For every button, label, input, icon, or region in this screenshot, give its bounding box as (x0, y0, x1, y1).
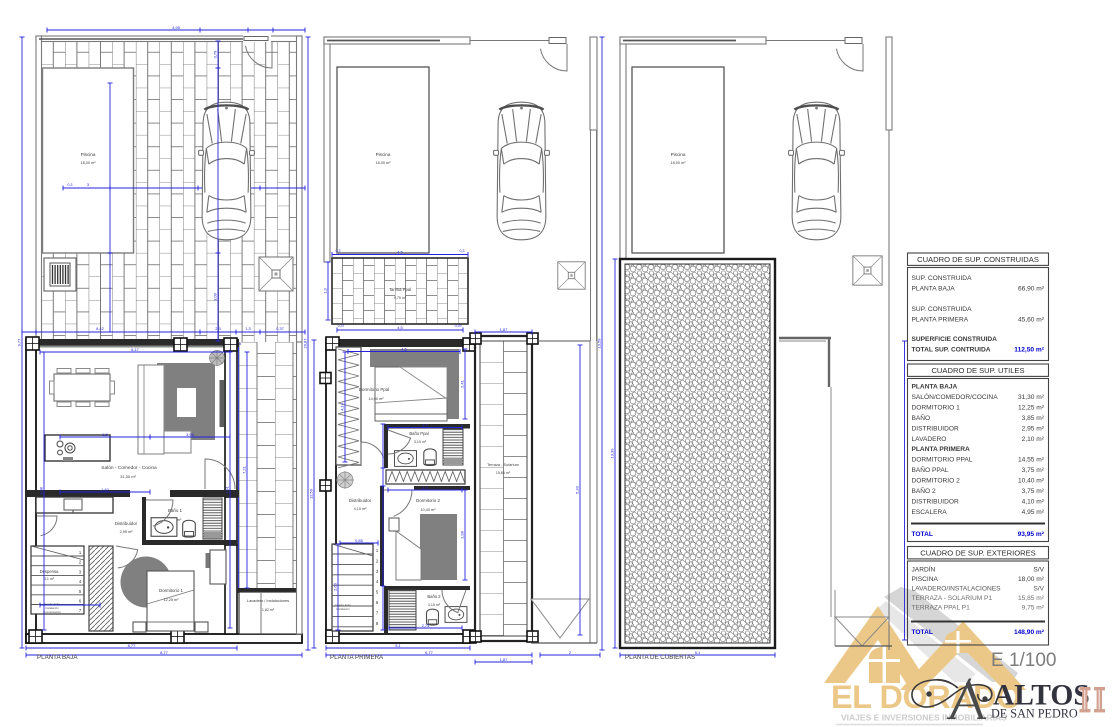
svg-text:S/V: S/V (1033, 586, 1044, 593)
svg-text:7,91: 7,91 (225, 485, 230, 494)
svg-text:Dormitorio 1: Dormitorio 1 (159, 588, 183, 593)
svg-text:BAÑO 2: BAÑO 2 (912, 486, 937, 495)
svg-text:4: 4 (376, 579, 379, 584)
svg-text:5: 5 (376, 590, 379, 595)
svg-text:PLANTA PRIMERA: PLANTA PRIMERA (912, 446, 970, 453)
svg-text:2,10 m²: 2,10 m² (1022, 436, 1045, 443)
svg-text:4,5: 4,5 (401, 346, 407, 351)
svg-text:0,29: 0,29 (455, 324, 462, 328)
svg-text:PLANTA BAJA: PLANTA BAJA (912, 384, 958, 391)
svg-text:0,79: 0,79 (213, 50, 218, 59)
svg-text:DISTRIBUIDOR: DISTRIBUIDOR (912, 425, 959, 432)
svg-text:3,75 m²: 3,75 m² (1022, 467, 1045, 474)
svg-text:9,75 m²: 9,75 m² (394, 296, 407, 300)
svg-text:66,90 m²: 66,90 m² (1018, 286, 1045, 293)
svg-text:TERRAZA PPAL P1: TERRAZA PPAL P1 (912, 605, 971, 612)
svg-text:Dormitorio Ppal: Dormitorio Ppal (359, 387, 389, 392)
svg-text:PISCINA: PISCINA (912, 576, 939, 583)
svg-text:TOTAL: TOTAL (912, 629, 933, 636)
svg-text:2,74: 2,74 (422, 623, 431, 628)
svg-text:2,95 m²: 2,95 m² (1022, 425, 1045, 432)
svg-text:PLANTA PRIMERA: PLANTA PRIMERA (912, 317, 969, 324)
svg-text:4,5: 4,5 (397, 325, 403, 330)
svg-text:3,75 m²: 3,75 m² (1022, 488, 1045, 495)
svg-text:12,25 m²: 12,25 m² (1018, 404, 1045, 411)
svg-text:5,33: 5,33 (575, 485, 580, 494)
svg-text:4,10 m²: 4,10 m² (354, 507, 368, 511)
svg-text:Terraza - Solarium: Terraza - Solarium (487, 462, 519, 467)
svg-text:0,85: 0,85 (355, 538, 364, 543)
svg-text:BAÑO: BAÑO (912, 413, 931, 422)
svg-text:2: 2 (569, 650, 572, 655)
svg-text:3,15 m²: 3,15 m² (428, 603, 441, 607)
svg-text:3,1 m²: 3,1 m² (44, 577, 55, 581)
svg-text:3,09: 3,09 (213, 292, 218, 301)
svg-text:4,95: 4,95 (172, 25, 181, 30)
svg-text:Piscina: Piscina (671, 152, 686, 157)
svg-text:Baño 2: Baño 2 (427, 594, 441, 599)
svg-text:9,75 m²: 9,75 m² (1022, 605, 1045, 612)
svg-text:DE SAN PEDRO: DE SAN PEDRO (991, 707, 1078, 721)
svg-text:14,55 m²: 14,55 m² (1018, 457, 1045, 464)
svg-text:1,87: 1,87 (500, 327, 509, 332)
svg-text:1,82 m²: 1,82 m² (262, 608, 275, 612)
svg-text:BAÑO PPAL: BAÑO PPAL (912, 465, 949, 474)
svg-text:0,3: 0,3 (460, 249, 465, 253)
svg-text:Salón - Comedor - Cocina: Salón - Comedor - Cocina (101, 465, 157, 471)
svg-text:1,3: 1,3 (245, 326, 251, 331)
svg-text:E 1/100: E 1/100 (991, 650, 1057, 671)
svg-text:CUADRO DE SUP. CONSTRUIDAS: CUADRO DE SUP. CONSTRUIDAS (917, 255, 1039, 264)
svg-text:Piscina: Piscina (376, 152, 391, 157)
svg-text:DORMITORIO 1: DORMITORIO 1 (912, 404, 961, 411)
svg-text:Comunicación: Comunicación (43, 610, 61, 614)
svg-text:SALÓN/COMEDOR/COCINA: SALÓN/COMEDOR/COCINA (912, 392, 999, 401)
svg-text:6,17: 6,17 (131, 347, 140, 352)
svg-text:0,3: 0,3 (336, 249, 341, 253)
svg-text:PLANTA BAJA: PLANTA BAJA (37, 654, 78, 661)
svg-text:TERRAZA - SOLARIUM P1: TERRAZA - SOLARIUM P1 (912, 595, 993, 602)
svg-text:0,3: 0,3 (68, 183, 73, 187)
svg-text:5,1: 5,1 (695, 650, 701, 655)
svg-text:DORMITORIO PPAL: DORMITORIO PPAL (912, 457, 973, 464)
svg-text:9,08: 9,08 (39, 486, 44, 495)
svg-text:2,60: 2,60 (333, 582, 338, 591)
svg-text:DISTRIBUIDOR: DISTRIBUIDOR (912, 498, 959, 505)
svg-text:1,3: 1,3 (323, 287, 328, 293)
svg-text:5,1: 5,1 (395, 643, 401, 648)
svg-text:TOTAL SUP. CONTRUIDA: TOTAL SUP. CONTRUIDA (912, 347, 991, 354)
svg-text:12,59: 12,59 (309, 488, 314, 499)
svg-text:2,95 m²: 2,95 m² (120, 530, 134, 534)
svg-text:2,7: 2,7 (422, 422, 428, 427)
svg-text:31,30 m²: 31,30 m² (1018, 394, 1045, 401)
svg-text:Despensa: Despensa (40, 569, 60, 574)
svg-text:Distribuidor: Distribuidor (349, 498, 372, 503)
svg-text:0,37: 0,37 (276, 326, 285, 331)
svg-text:Baño Ppal: Baño Ppal (409, 431, 428, 436)
svg-text:15,85 m²: 15,85 m² (496, 471, 511, 475)
svg-text:12,25 m²: 12,25 m² (164, 598, 180, 602)
svg-text:Piscina: Piscina (81, 152, 96, 157)
svg-text:Tarima Ppal: Tarima Ppal (389, 287, 411, 292)
svg-text:3,96: 3,96 (186, 432, 195, 437)
svg-text:3,15 m²: 3,15 m² (414, 440, 427, 444)
svg-text:4,14: 4,14 (340, 402, 345, 411)
svg-text:18,00 m²: 18,00 m² (376, 161, 392, 165)
svg-text:PLANTA PRIMERA: PLANTA PRIMERA (330, 654, 384, 661)
svg-text:8,77: 8,77 (160, 650, 169, 655)
svg-text:20,87: 20,87 (303, 338, 308, 349)
svg-text:148,90 m²: 148,90 m² (1014, 629, 1045, 636)
svg-text:Distribuidor: Distribuidor (115, 521, 138, 526)
svg-text:13,39: 13,39 (610, 448, 615, 459)
svg-text:4,10 m²: 4,10 m² (1022, 498, 1045, 505)
svg-text:PLANTA BAJA: PLANTA BAJA (912, 286, 956, 293)
svg-text:1: 1 (376, 548, 379, 553)
svg-text:8,77: 8,77 (128, 643, 137, 648)
svg-text:2: 2 (376, 558, 379, 563)
svg-text:7,21: 7,21 (242, 465, 247, 474)
svg-text:4,5: 4,5 (397, 249, 403, 254)
svg-text:1,98: 1,98 (460, 530, 465, 539)
svg-text:18,00 m²: 18,00 m² (671, 161, 687, 165)
svg-text:CUADRO DE SUP. UTILES: CUADRO DE SUP. UTILES (931, 366, 1024, 375)
svg-text:JARDÍN: JARDÍN (912, 565, 936, 574)
svg-text:93,95 m²: 93,95 m² (1018, 531, 1045, 538)
svg-text:Dormitorio 2: Dormitorio 2 (416, 498, 440, 503)
svg-text:SUP. CONSTRUIDA: SUP. CONSTRUIDA (912, 306, 973, 313)
svg-text:TOTAL: TOTAL (912, 531, 933, 538)
svg-text:10,40 m²: 10,40 m² (421, 508, 437, 512)
svg-text:10,40 m²: 10,40 m² (1018, 478, 1045, 485)
svg-text:DORMITORIO 2: DORMITORIO 2 (912, 478, 961, 485)
svg-text:9,77: 9,77 (17, 338, 22, 347)
svg-text:SUPERFICIE CONSTRUIDA: SUPERFICIE CONSTRUIDA (912, 336, 998, 343)
svg-text:14,00 m²: 14,00 m² (369, 397, 385, 401)
svg-text:CUADRO DE SUP. EXTERIORES: CUADRO DE SUP. EXTERIORES (920, 549, 1035, 558)
svg-text:6,77: 6,77 (425, 650, 434, 655)
svg-text:112,50 m²: 112,50 m² (1014, 347, 1044, 354)
svg-text:18,00 m²: 18,00 m² (81, 161, 97, 165)
svg-text:3: 3 (376, 569, 379, 574)
svg-text:Lavadero / Instalaciones: Lavadero / Instalaciones (247, 598, 289, 603)
svg-text:LAVADERO: LAVADERO (912, 436, 947, 443)
svg-text:6: 6 (376, 600, 379, 605)
svg-text:0,37: 0,37 (338, 324, 345, 328)
svg-text:31,30 m²: 31,30 m² (120, 474, 136, 479)
svg-text:13,59: 13,59 (597, 338, 602, 349)
svg-text:8,42: 8,42 (96, 326, 105, 331)
svg-text:PLANTA DE CUBIERTAS: PLANTA DE CUBIERTAS (625, 654, 695, 661)
svg-text:2,41: 2,41 (460, 379, 465, 388)
svg-text:1,87: 1,87 (500, 657, 509, 662)
svg-text:7: 7 (376, 610, 379, 615)
svg-text:SUP. CONSTRUIDA: SUP. CONSTRUIDA (912, 275, 973, 282)
svg-text:3,85 m²: 3,85 m² (1022, 415, 1045, 422)
svg-text:S/V: S/V (1033, 567, 1044, 574)
svg-text:LAVADERO/INSTALACIONES: LAVADERO/INSTALACIONES (912, 586, 1002, 593)
svg-text:18,00 m²: 18,00 m² (1018, 576, 1045, 583)
svg-text:15,85 m²: 15,85 m² (1018, 595, 1045, 602)
svg-text:ESCALERA: ESCALERA (912, 509, 948, 516)
svg-text:45,60 m²: 45,60 m² (1018, 317, 1045, 324)
svg-text:4,95 m²: 4,95 m² (1022, 509, 1045, 516)
svg-text:1,40: 1,40 (101, 487, 110, 492)
svg-text:8: 8 (376, 621, 379, 626)
svg-text:2,7: 2,7 (422, 485, 428, 490)
svg-text:1,5: 1,5 (102, 432, 108, 437)
